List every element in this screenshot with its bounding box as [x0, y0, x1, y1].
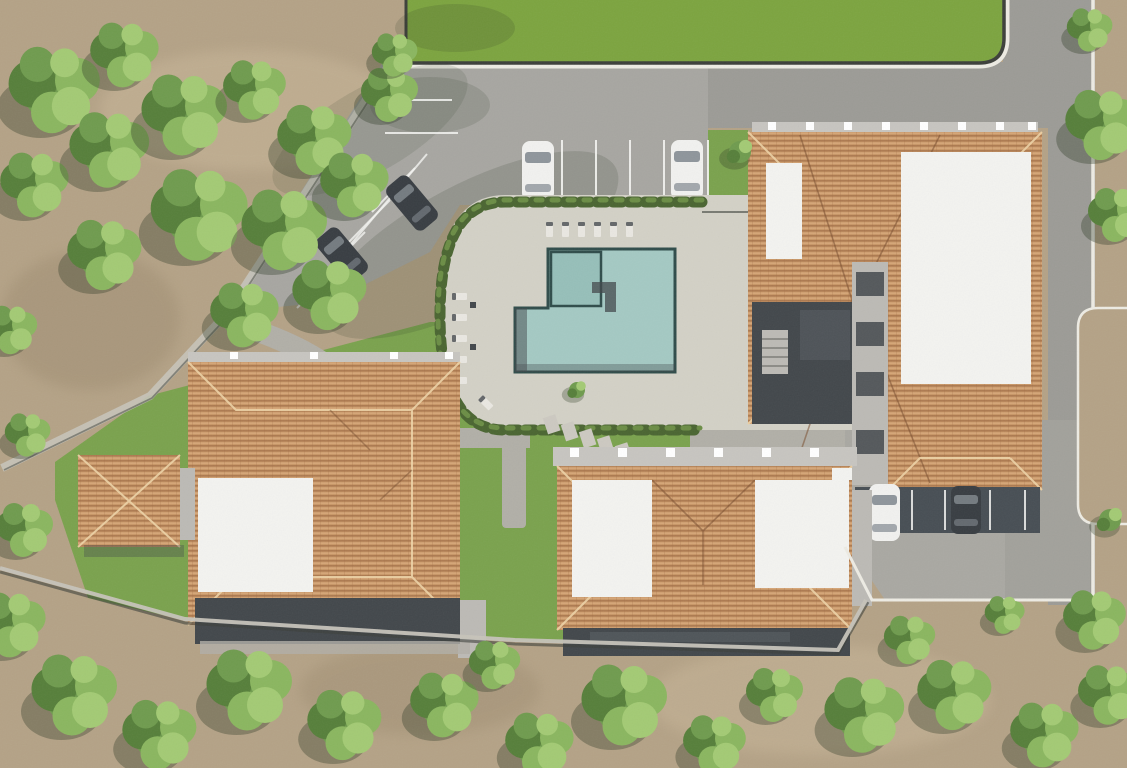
render-grain: [0, 0, 1127, 768]
site-plan-canvas: [0, 0, 1127, 768]
aerial-architectural-render: [0, 0, 1127, 768]
